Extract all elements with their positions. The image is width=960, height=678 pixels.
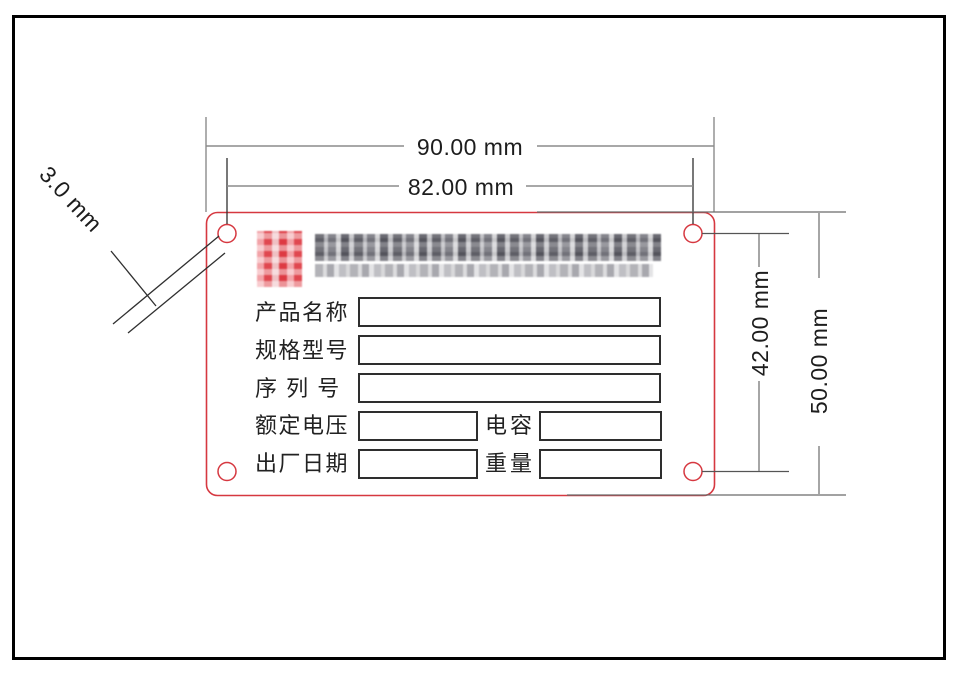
mounting-hole-bottom-left (218, 463, 236, 481)
field-box-spec-model (358, 335, 661, 365)
technical-drawing: 90.00 mm 82.00 mm 42.00 mm 50.00 mm 3.0 … (0, 0, 960, 678)
company-subtitle-redacted (315, 264, 653, 277)
mounting-hole-top-left (218, 225, 236, 243)
field-label-capacitance: 电容 (485, 414, 541, 437)
field-label-spec-model: 规格型号 (255, 339, 355, 362)
field-box-capacitance (539, 411, 662, 441)
field-label-serial-number: 序 列 号 (255, 377, 355, 400)
field-label-rated-voltage: 额定电压 (255, 414, 355, 437)
field-label-product-name: 产品名称 (255, 301, 355, 324)
mounting-hole-bottom-right (684, 463, 702, 481)
field-box-product-name (358, 297, 661, 327)
field-box-manufacture-date (358, 449, 478, 479)
dim-label-overall-height: 50.00 mm (806, 301, 832, 421)
dim-label-hole-spacing-vertical: 42.00 mm (747, 263, 773, 383)
leader-tick-hole-dia (111, 251, 156, 306)
field-box-serial-number (358, 373, 661, 403)
mounting-hole-top-right (684, 225, 702, 243)
dim-label-overall-width: 90.00 mm (400, 134, 540, 160)
field-box-rated-voltage (358, 411, 478, 441)
leader-line-hole-dia-a (113, 236, 219, 324)
company-logo-redacted (257, 231, 302, 287)
field-label-manufacture-date: 出厂日期 (255, 452, 355, 475)
company-name-redacted (315, 234, 661, 261)
field-box-weight (539, 449, 662, 479)
field-label-weight: 重量 (485, 452, 541, 475)
dim-label-hole-spacing-horizontal: 82.00 mm (391, 174, 531, 200)
